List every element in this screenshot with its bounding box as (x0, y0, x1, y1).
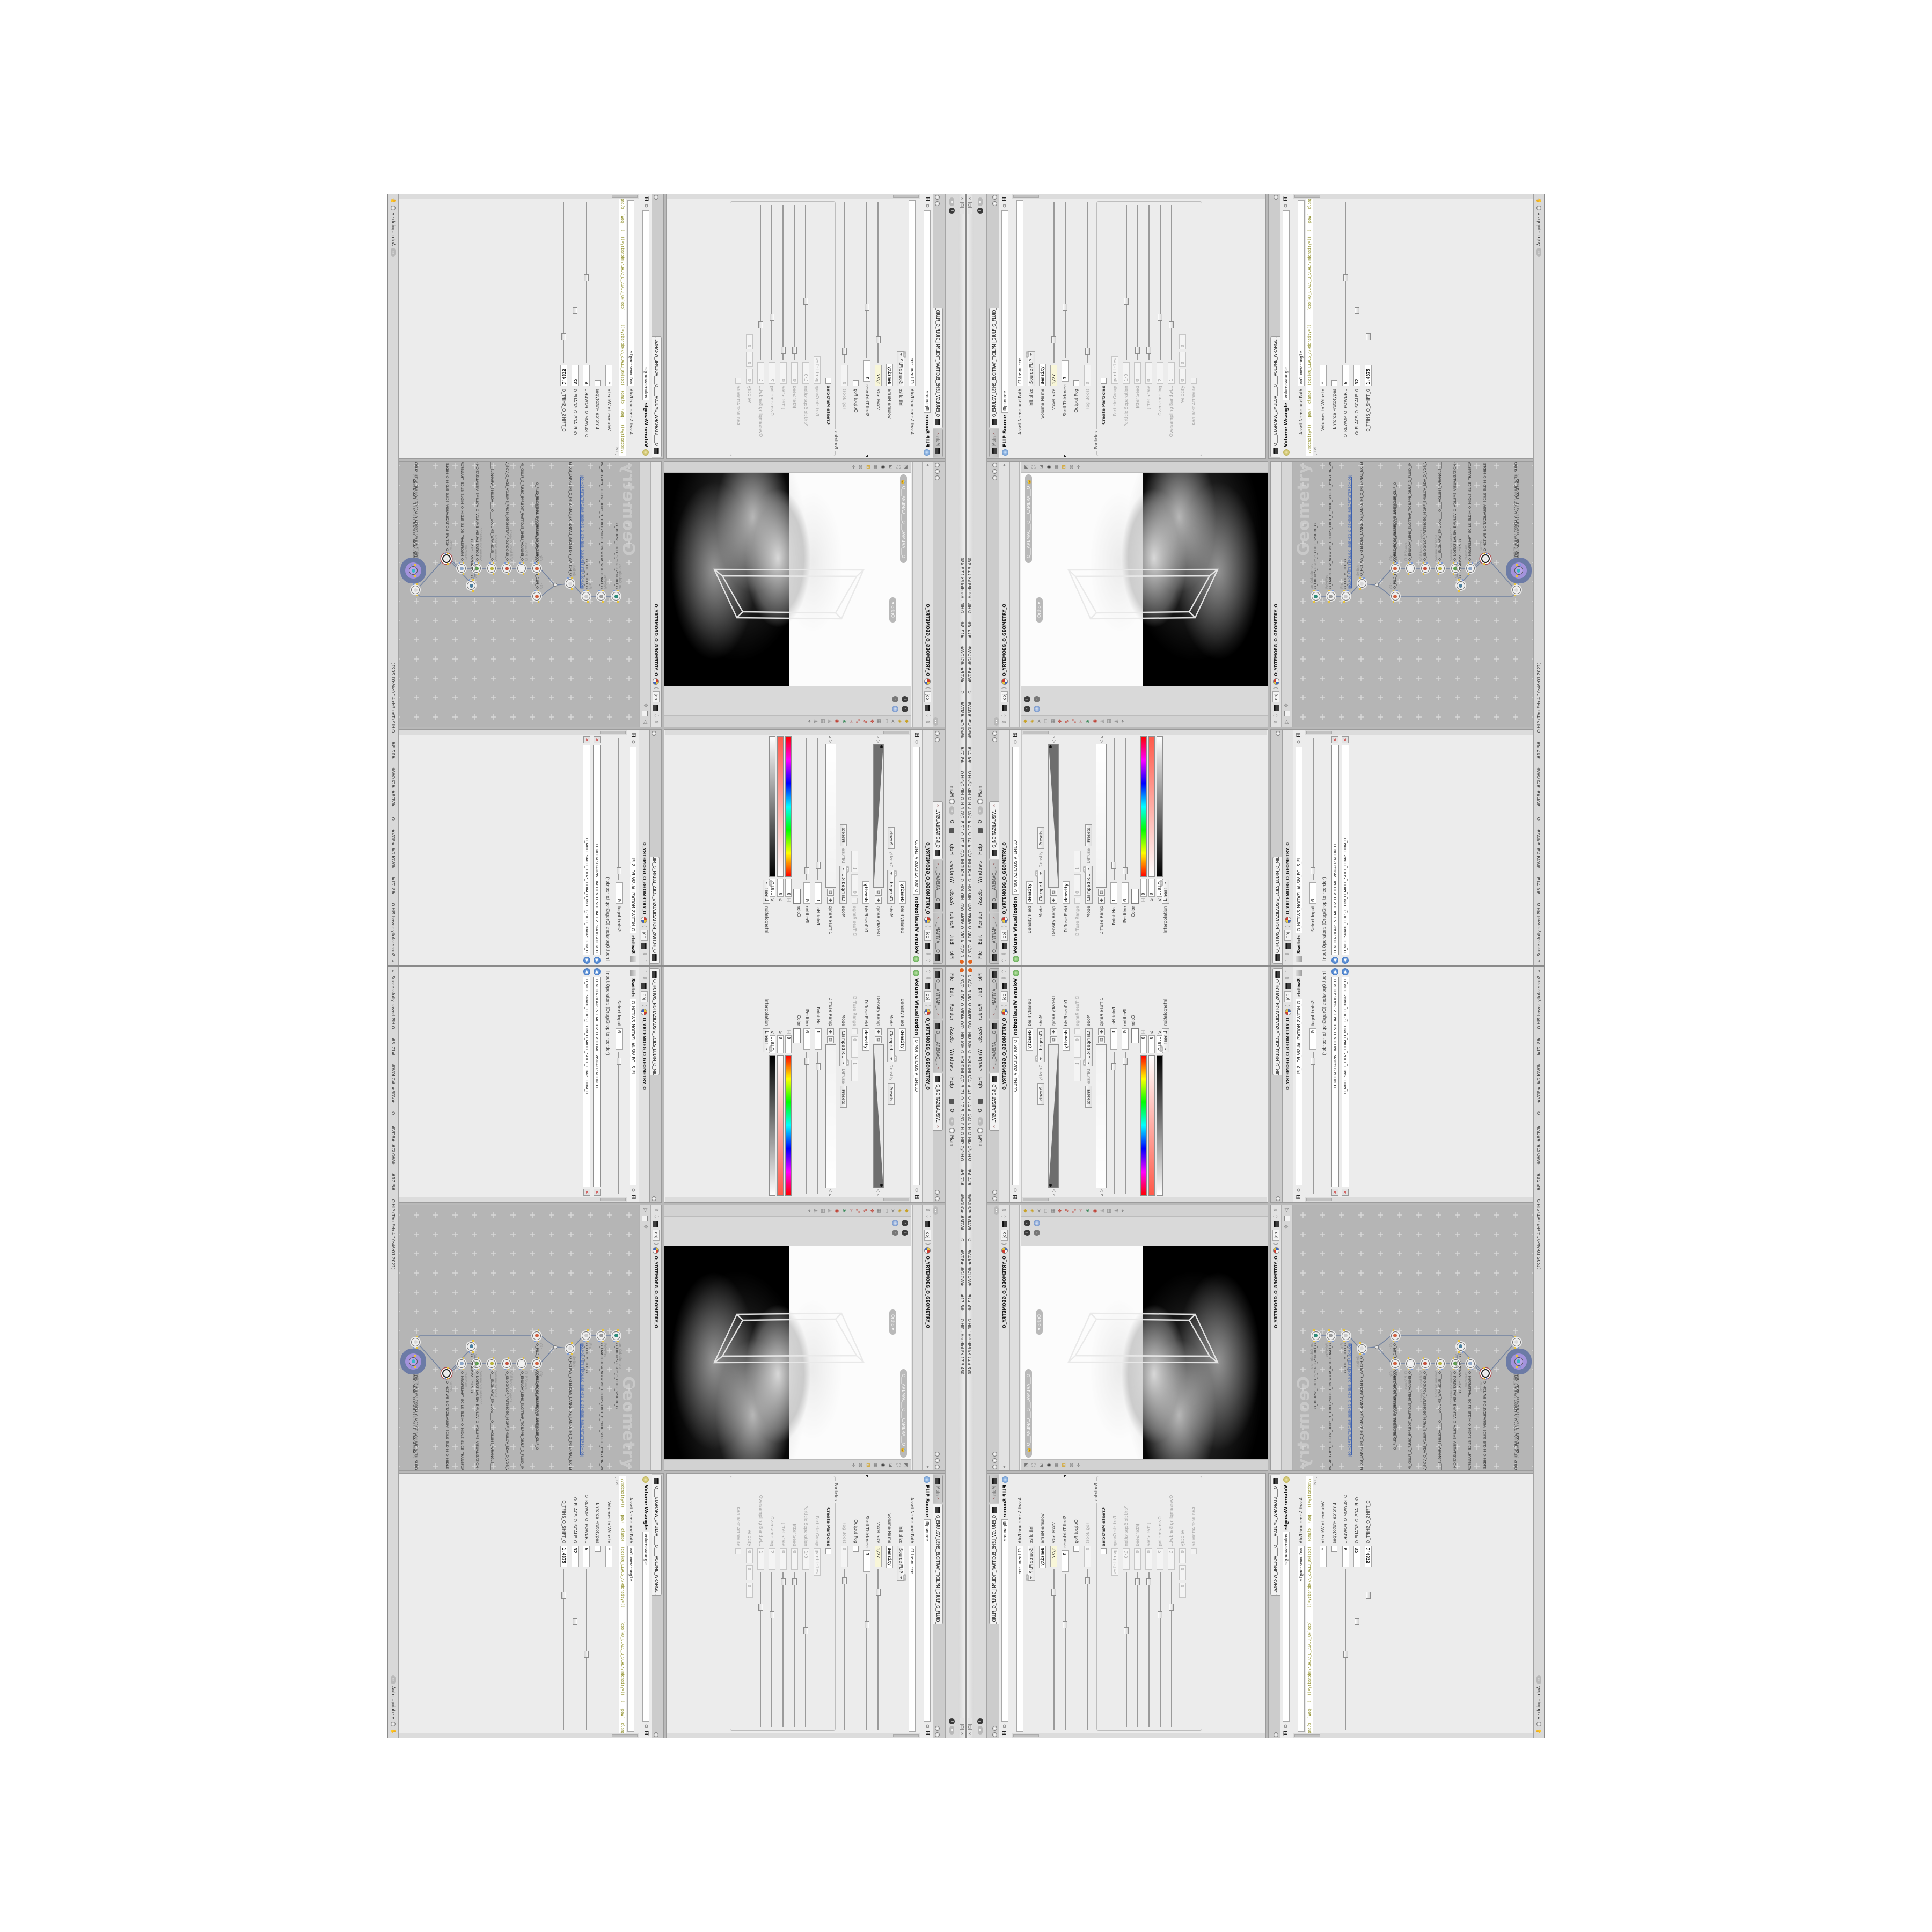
tab-close-icon[interactable]: ✕ (992, 804, 996, 807)
network-node[interactable] (612, 1331, 620, 1340)
param-field[interactable]: 0 (803, 1028, 810, 1050)
input-reorder-icon[interactable]: ◀ (1342, 957, 1349, 964)
hsv-field-h[interactable]: 0 (786, 879, 792, 897)
gear-icon[interactable]: ⚙ (1284, 203, 1289, 208)
node-flag-icon[interactable] (1514, 1336, 1516, 1337)
node-flag-icon[interactable] (1462, 1351, 1463, 1353)
param-slider[interactable] (1123, 203, 1130, 360)
node-flag-icon[interactable] (1514, 595, 1516, 596)
node-flag-icon[interactable] (534, 1341, 536, 1342)
network-graph[interactable]: Geometry an_CubeSphereO_EREHPS_EBUC_O_CU… (1293, 462, 1534, 727)
param-dropdown[interactable]: Source FLIP◂▸ (897, 1546, 905, 1581)
pane-tab[interactable]: O____AREMAC_...✕ (989, 860, 999, 913)
param-slider[interactable] (875, 200, 882, 363)
param-field[interactable]: particles (1111, 356, 1118, 384)
box-select-icon[interactable]: ⬚ (883, 719, 888, 724)
hsv-slider-s[interactable] (778, 1055, 784, 1196)
param-slider[interactable] (815, 736, 822, 880)
network-frame-icon[interactable] (642, 711, 648, 716)
info-dark-icon[interactable]: ⊞ (865, 465, 870, 469)
node-flag-icon[interactable] (1396, 1368, 1398, 1370)
param-slider[interactable] (1050, 200, 1057, 363)
pane-split-arrows[interactable]: ◂▸ (391, 248, 396, 257)
cut-icon[interactable]: ✱ (1086, 1209, 1091, 1213)
frame-icon[interactable]: ⛶ (1031, 465, 1037, 469)
hsv-slider-s[interactable] (1148, 1055, 1155, 1196)
presets-button[interactable]: Presets (1037, 827, 1044, 849)
pane-split-arrows[interactable]: ◂▸ (391, 1675, 396, 1684)
pane-type-icon[interactable] (1274, 705, 1279, 711)
hsv-field-s[interactable]: 0 (778, 879, 784, 897)
info-circle-icon[interactable]: i (1024, 1230, 1030, 1236)
network-node[interactable] (1375, 1345, 1379, 1349)
range-min-field[interactable]: 0 (1074, 874, 1081, 896)
node-flag-icon[interactable] (1423, 573, 1424, 575)
param-field[interactable]: 1/27 (1050, 365, 1057, 386)
pane-target-icon[interactable] (935, 1190, 940, 1195)
mode-dropdown[interactable]: Clamped...◂▸ (1037, 870, 1045, 904)
context-chip[interactable]: obj (924, 991, 931, 1002)
context-chip[interactable]: obj (924, 1230, 931, 1241)
pane-tab[interactable]: O____AREMAC_...✕ (933, 1020, 943, 1073)
param-slider[interactable] (1050, 1569, 1057, 1732)
network-node[interactable] (1342, 1331, 1350, 1340)
node-flag-icon[interactable] (587, 601, 589, 603)
node-flag-icon[interactable] (459, 1368, 460, 1370)
hda-icon[interactable]: H (924, 196, 930, 201)
main-desktop-selector[interactable]: Main (949, 786, 955, 805)
frame-icon[interactable]: ⛶ (895, 465, 901, 469)
tab-close-icon[interactable]: ✕ (936, 432, 940, 435)
hsv-slider-v[interactable] (770, 736, 776, 877)
param-slider[interactable] (802, 1572, 809, 1729)
node-flag-icon[interactable] (504, 562, 506, 563)
ramp-marker-icon[interactable]: ◁ (829, 740, 833, 743)
camera-lock-icon[interactable]: ◩ (1024, 1463, 1029, 1468)
magnet-prim-icon[interactable]: ▤ (820, 719, 825, 724)
ortho-pill[interactable]: Ortho ▾ (889, 597, 896, 623)
range-min-field[interactable]: 0 (851, 874, 858, 896)
hsv-slider-h[interactable] (1140, 1055, 1147, 1196)
network-node[interactable] (1512, 1338, 1521, 1346)
pane-tab[interactable]: O____ELGNARW_EMULOV____O____VOLUME_WRANG… (652, 1475, 662, 1596)
param-field[interactable]: 3 (863, 360, 870, 382)
param-checkbox[interactable] (1073, 380, 1079, 386)
node-flag-icon[interactable] (1426, 1368, 1428, 1370)
node-flag-icon[interactable] (1347, 590, 1349, 591)
node-flag-icon[interactable] (1472, 562, 1473, 563)
node-flag-icon[interactable] (1343, 601, 1345, 603)
minimize-button[interactable]: – (960, 1718, 964, 1723)
param-checkbox[interactable] (1073, 1546, 1079, 1552)
pane-tab[interactable]: O____AREMAC_...✕ (989, 1020, 999, 1073)
node-flag-icon[interactable] (523, 1357, 524, 1359)
magnet-grid-icon[interactable]: ◬ (1100, 720, 1105, 723)
hsv-slider-h[interactable] (786, 1055, 792, 1196)
interrupt-hand-icon[interactable]: ✋ (1536, 197, 1542, 203)
vex-code-editor[interactable]: //@density=(( -pow( clamp( (cos(@O_ELACS… (1306, 199, 1313, 456)
switch-scrollbar[interactable] (399, 730, 627, 735)
misc-icon[interactable]: ⌖ (806, 1209, 811, 1212)
node-flag-icon[interactable] (1423, 1368, 1424, 1370)
down-arrow-icon[interactable]: ⇩ (1274, 1214, 1279, 1218)
node-flag-icon[interactable] (508, 573, 509, 575)
pane-target-icon[interactable] (935, 201, 940, 206)
wrangle-node-name-field[interactable]: volumewrangle (642, 210, 649, 400)
param-checkbox[interactable] (595, 1546, 601, 1552)
pane-tab[interactable]: O_EMULOV_LEHS_ELCITRAP_TICILPMI_DIULF_O_… (933, 1504, 943, 1624)
pose-icon[interactable]: ✂ (848, 719, 853, 723)
node-flag-icon[interactable] (534, 562, 536, 563)
node-flag-icon[interactable] (414, 1366, 416, 1368)
param-field[interactable]: 1 (815, 882, 822, 904)
visibility-icon[interactable]: ◍ (1069, 1463, 1074, 1467)
node-flag-icon[interactable] (414, 575, 416, 577)
close-button[interactable]: ✕ (960, 196, 964, 201)
tab-close-icon[interactable]: ✕ (992, 1013, 996, 1016)
close-button[interactable]: ✕ (968, 1731, 972, 1736)
node-flag-icon[interactable] (1438, 1357, 1439, 1359)
param-field[interactable]: 1 (1168, 1548, 1175, 1570)
down-arrow-icon[interactable]: ⇩ (925, 952, 931, 956)
param-field[interactable]: 0 (616, 1028, 623, 1050)
hda-icon[interactable]: H (1013, 1195, 1019, 1199)
param-checkbox[interactable] (1191, 378, 1197, 384)
color-swatch[interactable] (793, 889, 801, 904)
input-operator-field[interactable]: O_MROFSNART_ECILS_ELDIM_O_MIDLE_SLICE_TR… (583, 977, 591, 1187)
down-arrow-icon[interactable]: ⇩ (1274, 713, 1279, 718)
viewport-render[interactable]: O___AREMAC___O___CAMERA___O 🔒 Ortho ▾ (1021, 1246, 1268, 1459)
param-field[interactable]: 0 (616, 882, 623, 904)
switch-node-name-field[interactable]: O_HCTIWS_NOITAZILAUSIV_ECILS_EL (1296, 747, 1302, 934)
menu-edit[interactable]: Edit (948, 932, 956, 948)
pane-menu-icon[interactable] (935, 195, 940, 200)
flip-scrollbar[interactable] (667, 1733, 920, 1738)
minimize-button[interactable]: – (960, 209, 964, 214)
menu-help[interactable]: Help (948, 1074, 956, 1092)
node-flag-icon[interactable] (1468, 1357, 1469, 1359)
param-checkbox[interactable] (595, 380, 601, 386)
view-icon[interactable]: ◭ (1114, 720, 1119, 723)
help-circle-icon[interactable]: ? (977, 208, 983, 214)
tab-close-icon[interactable]: ✕ (936, 1125, 940, 1128)
presets-button[interactable]: Presets (840, 824, 847, 846)
input-reorder-icon[interactable]: ◀ (594, 957, 601, 964)
input-reorder-icon[interactable]: ◀ (1342, 968, 1349, 975)
node-flag-icon[interactable] (1313, 1341, 1315, 1342)
help-circle-icon[interactable]: ? (949, 1718, 955, 1724)
pane-menu-icon[interactable] (992, 1196, 997, 1201)
network-node[interactable] (1312, 1331, 1320, 1340)
param-field[interactable]: 0 (1145, 1548, 1152, 1570)
node-flag-icon[interactable] (1486, 1378, 1488, 1379)
node-flag-icon[interactable] (413, 583, 414, 585)
pane-menu-icon[interactable] (1274, 195, 1278, 200)
pane-tab[interactable]: O_EMULOV_LEHS_ELCITRAP_TICILPMI_DIULF_O_… (989, 308, 999, 428)
node-flag-icon[interactable] (1396, 590, 1398, 591)
network-path[interactable]: O_YRTEMOEG_O_GEOMETRY_O (1274, 1256, 1278, 1328)
param-checkbox[interactable] (1191, 1548, 1197, 1554)
input-operator-field[interactable]: O_NOITAZILAUSIV_EMULOV_O_VOLUME_VISUALIZ… (1331, 977, 1339, 1187)
network-node[interactable] (411, 586, 420, 594)
param-field[interactable]: 2 (1157, 1548, 1163, 1570)
pane-type-icon[interactable] (654, 705, 659, 711)
frame-icon[interactable]: ⛶ (895, 1463, 901, 1467)
node-flag-icon[interactable] (411, 564, 412, 566)
pane-tab[interactable]: O___ARTNAM_...✕ (933, 913, 943, 964)
param-dropdown[interactable]: Source FLIP◂▸ (1028, 351, 1035, 386)
visibility-icon[interactable]: ◍ (858, 1463, 863, 1467)
pane-tab[interactable]: O___ARTNAM_...✕ (989, 913, 999, 964)
param-field[interactable]: volumewrangle (627, 1546, 634, 1732)
camera-lock-icon[interactable]: ◩ (903, 1463, 908, 1468)
network-path[interactable]: O_YRTEMOEG_O_GEOMETRY_O (925, 1018, 930, 1090)
node-flag-icon[interactable] (1441, 562, 1443, 563)
ramp-marker-icon[interactable]: ◁ (1099, 740, 1104, 743)
update-mode-selector[interactable]: ◂▸ Auto Update ▼ ✋ (1536, 1675, 1542, 1735)
scale-icon[interactable]: ⤢ (855, 1209, 860, 1212)
node-flag-icon[interactable] (1483, 1367, 1485, 1369)
camera-selector-pill[interactable]: O___AREMAC___O___CAMERA___O 🔒 (1025, 1369, 1032, 1458)
menu-edit[interactable]: Edit (948, 984, 956, 1000)
param-field[interactable]: * (1320, 365, 1327, 386)
paint-icon[interactable]: ◉ (1093, 719, 1098, 723)
network-node[interactable] (409, 566, 418, 575)
node-flag-icon[interactable] (598, 1341, 600, 1342)
param-field[interactable]: density (899, 881, 906, 904)
flip-node-name-field[interactable]: flipsource (1001, 210, 1008, 413)
hsv-field-h[interactable]: 0 (1140, 1035, 1147, 1053)
switch-scrollbar[interactable] (399, 1197, 627, 1202)
hda-icon[interactable]: H (1296, 733, 1302, 737)
pane-split-arrows[interactable]: ◂▸ (994, 717, 999, 726)
snapshot-icon[interactable]: ✛ (850, 465, 855, 469)
context-chip[interactable]: obj (924, 930, 931, 941)
node-flag-icon[interactable] (459, 562, 460, 563)
node-flag-icon[interactable] (1441, 1368, 1443, 1370)
network-path[interactable]: O_YRTEMOEG_O_GEOMETRY_O (654, 604, 658, 676)
param-field[interactable]: 0 (841, 365, 848, 386)
param-slider[interactable] (1342, 200, 1349, 363)
move-icon[interactable]: ✥ (1058, 719, 1063, 723)
param-slider[interactable] (875, 1569, 882, 1732)
node-flag-icon[interactable] (447, 553, 449, 554)
param-slider[interactable] (841, 200, 848, 363)
node-flag-icon[interactable] (538, 1368, 539, 1370)
param-field[interactable]: * (1320, 1546, 1327, 1567)
pane-pin-icon[interactable] (935, 1458, 940, 1463)
param-slider[interactable] (1157, 1572, 1163, 1729)
select-icon[interactable]: ➤ (1037, 719, 1042, 723)
pane-tab[interactable]: O____ELGNARW_EMULOV____O____VOLUME_WRANG… (1270, 336, 1280, 457)
param-slider[interactable] (1342, 1569, 1349, 1732)
context-chip[interactable]: obj (1001, 991, 1008, 1002)
input-operator-field[interactable]: O_NOITAZILAUSIV_EMULOV_O_VOLUME_VISUALIZ… (1331, 745, 1339, 955)
update-mode-selector[interactable]: ◂▸ Auto Update ▼ ✋ (391, 197, 396, 257)
wrangle-node-name-field[interactable]: volumewrangle (642, 1532, 649, 1722)
magnet-grid-icon[interactable]: ◬ (827, 720, 832, 723)
pane-menu-icon[interactable] (652, 1196, 656, 1201)
node-flag-icon[interactable] (571, 1353, 573, 1355)
pane-target-icon[interactable] (992, 475, 997, 480)
network-node[interactable] (1391, 592, 1400, 601)
down-arrow-icon[interactable]: ⇩ (1002, 952, 1007, 956)
tab-close-icon[interactable]: ✕ (936, 1066, 940, 1069)
pane-menu-icon[interactable] (1276, 1196, 1280, 1201)
vector-field[interactable]: 0 (746, 352, 753, 367)
magnet-grid-icon[interactable]: ◬ (827, 1209, 832, 1213)
hsv-slider-v[interactable] (1157, 736, 1163, 877)
node-flag-icon[interactable] (1462, 579, 1463, 581)
restore-button[interactable]: ❐ (968, 202, 972, 208)
info-dark-icon[interactable]: ⊞ (1062, 1463, 1067, 1467)
node-flag-icon[interactable] (1393, 573, 1394, 575)
hsv-slider-s[interactable] (778, 736, 784, 877)
snapshot-icon[interactable]: ✛ (850, 1463, 855, 1467)
select-icon[interactable]: ➤ (890, 719, 895, 723)
param-checkbox[interactable] (735, 1548, 741, 1554)
param-field[interactable]: 0 (1309, 882, 1316, 904)
network-node[interactable] (1406, 1359, 1415, 1368)
node-flag-icon[interactable] (617, 601, 619, 603)
node-flag-icon[interactable] (1396, 562, 1398, 563)
hda-icon[interactable]: H (643, 1731, 649, 1736)
pane-menu-icon[interactable] (935, 1465, 940, 1469)
param-field[interactable]: 32 (1353, 365, 1360, 386)
node-flag-icon[interactable] (472, 1340, 474, 1342)
pane-tab[interactable]: Main✕ (933, 1475, 943, 1503)
tab-close-icon[interactable]: ✕ (992, 863, 996, 866)
pane-split-arrows-right[interactable]: ◂▸ (949, 1726, 954, 1735)
network-frame-icon[interactable] (1284, 711, 1290, 716)
ramp-marker-icon[interactable]: ▵ (1051, 736, 1056, 738)
flip-node-name-field[interactable]: flipsource (924, 210, 931, 413)
node-flag-icon[interactable] (1423, 562, 1424, 563)
hda-icon[interactable]: H (643, 196, 649, 201)
pose-icon[interactable]: ✂ (1079, 719, 1084, 723)
range-min-field[interactable]: 0 (1074, 1036, 1081, 1058)
node-flag-icon[interactable] (1393, 1341, 1394, 1342)
misc-icon[interactable]: ⌖ (1121, 720, 1126, 722)
diffuse-ramp-bar[interactable] (825, 744, 836, 888)
input-delete-icon[interactable]: ✕ (583, 1189, 590, 1196)
mode-dropdown[interactable]: Clamped R...◂▸ (840, 866, 847, 904)
magnifier-icon[interactable]: ⌕ (892, 696, 898, 702)
presets-button[interactable]: Presets (888, 1083, 895, 1105)
param-slider[interactable] (1134, 203, 1141, 360)
node-flag-icon[interactable] (504, 1368, 506, 1370)
param-field[interactable]: 0 (791, 1548, 798, 1570)
ramp-delete-point-button[interactable]: ⊠ (828, 1036, 835, 1043)
presets-button[interactable]: Presets (1085, 824, 1092, 846)
down-arrow-icon[interactable]: ⇩ (1285, 976, 1291, 980)
node-flag-icon[interactable] (1483, 553, 1485, 554)
mode-dropdown[interactable]: Clamped...◂▸ (1037, 1028, 1045, 1062)
hsv-slider-v[interactable] (1157, 1055, 1163, 1196)
shade-icon[interactable]: ◉ (880, 1463, 885, 1467)
menu-file[interactable]: File (977, 970, 984, 984)
camera-selector-pill[interactable]: O___AREMAC___O___CAMERA___O 🔒 (1025, 474, 1032, 563)
up-arrow-icon[interactable]: ⇧ (925, 969, 931, 974)
node-flag-icon[interactable] (1313, 590, 1315, 591)
pane-menu-icon[interactable] (935, 463, 940, 467)
context-chip[interactable]: obj (653, 691, 660, 702)
viz-scrollbar[interactable] (1022, 1197, 1267, 1202)
box-select-icon[interactable]: ⬚ (883, 1209, 888, 1213)
network-node[interactable] (532, 564, 541, 573)
pane-type-icon[interactable] (1002, 1221, 1007, 1227)
network-node[interactable] (553, 1345, 557, 1349)
network-path[interactable]: O_YRTEMOEG_O_GEOMETRY_O (1274, 604, 1278, 676)
node-flag-icon[interactable] (1343, 590, 1345, 591)
vex-code-editor[interactable]: //@density=(( -pow( clamp( (cos(@O_ELACS… (1306, 1476, 1313, 1733)
param-field[interactable]: 32 (572, 1546, 579, 1567)
shading-icon[interactable]: ◆ (904, 720, 909, 723)
grid-yellow-icon[interactable]: ▦ (1054, 1463, 1059, 1468)
param-field[interactable]: volumewrangle (1298, 200, 1305, 386)
node-flag-icon[interactable] (447, 563, 449, 565)
network-node[interactable] (566, 1344, 574, 1353)
menu-assets[interactable]: Assets (977, 1024, 984, 1046)
hda-icon[interactable]: H (630, 1195, 636, 1199)
context-chip[interactable]: obj (1001, 1230, 1008, 1241)
param-slider[interactable] (1084, 200, 1091, 363)
viz-scrollbar[interactable] (665, 730, 910, 735)
network-node[interactable] (1391, 1331, 1400, 1340)
node-flag-icon[interactable] (489, 1368, 491, 1370)
node-flag-icon[interactable] (493, 1357, 494, 1359)
snap-icon[interactable]: ◈ (1030, 720, 1035, 723)
pane-split-arrows[interactable]: ◂▸ (933, 717, 938, 726)
paint-icon[interactable]: ◉ (834, 719, 839, 723)
network-node[interactable] (1421, 1359, 1430, 1368)
node-flag-icon[interactable] (463, 1368, 464, 1370)
flip-scrollbar[interactable] (667, 194, 920, 199)
vector-field[interactable]: 0 (1179, 1583, 1186, 1598)
target-circle-icon[interactable]: ◎ (1034, 1220, 1040, 1226)
param-slider[interactable] (791, 1572, 798, 1729)
paint-icon[interactable]: ◉ (834, 1209, 839, 1213)
param-slider[interactable] (1062, 200, 1069, 358)
restore-button[interactable]: ❐ (968, 1724, 972, 1730)
network-play-icon[interactable]: ▷ (642, 720, 648, 724)
network-node[interactable] (532, 1331, 541, 1340)
menu-edit[interactable]: Edit (977, 984, 984, 1000)
viewport-render[interactable]: O___AREMAC___O___CAMERA___O 🔒 Ortho ▾ (664, 473, 911, 686)
param-slider[interactable] (1062, 1574, 1069, 1732)
range-checkbox[interactable] (1074, 1028, 1080, 1034)
node-flag-icon[interactable] (1328, 1341, 1330, 1342)
context-chip[interactable]: obj (924, 691, 931, 702)
pane-target-icon[interactable] (935, 475, 940, 480)
node-flag-icon[interactable] (413, 1347, 414, 1349)
pane-menu-icon[interactable] (652, 731, 656, 736)
network-path[interactable]: O_YRTEMOEG_O_GEOMETRY_O (925, 604, 930, 676)
down-arrow-icon[interactable]: ⇩ (1002, 976, 1007, 980)
gear-icon[interactable]: ⚙ (631, 1188, 636, 1192)
network-node[interactable] (566, 579, 574, 588)
node-flag-icon[interactable] (1453, 1368, 1454, 1370)
param-field[interactable]: 3 (863, 1550, 870, 1572)
node-flag-icon[interactable] (416, 1347, 418, 1349)
network-node[interactable] (1436, 564, 1445, 573)
node-flag-icon[interactable] (508, 1368, 509, 1370)
rotate-icon[interactable]: ↻ (862, 1209, 867, 1213)
node-flag-icon[interactable] (1408, 573, 1409, 575)
grid-yellow-icon[interactable]: ▦ (873, 465, 878, 470)
node-flag-icon[interactable] (587, 590, 589, 591)
lasso-icon[interactable]: ▦ (1051, 1209, 1056, 1213)
